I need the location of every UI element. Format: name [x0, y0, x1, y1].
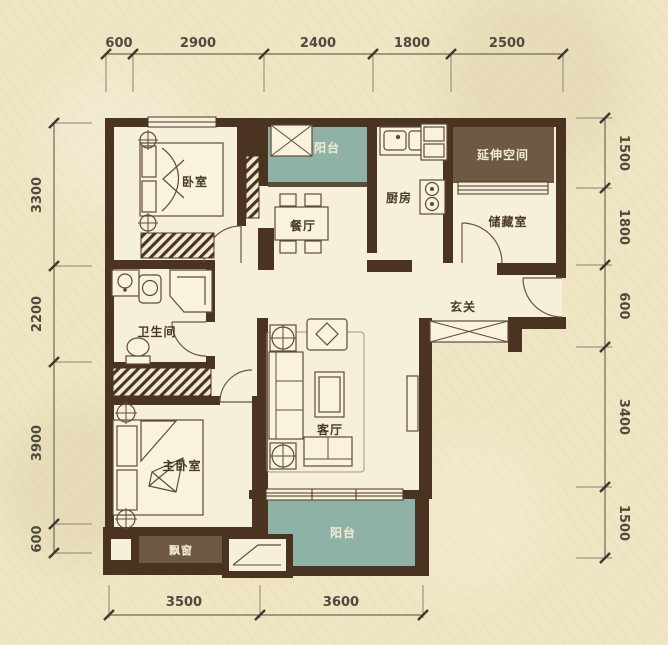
- faucet-dot: [396, 135, 400, 139]
- dim-label: 2500: [489, 36, 525, 51]
- burner-dot: [430, 202, 434, 206]
- wall-segment: [556, 118, 566, 278]
- room-label-master-bedroom: 主卧室: [162, 458, 201, 473]
- dim-label: 1800: [394, 36, 430, 51]
- wall-segment: [415, 497, 429, 576]
- room-label-entry: 玄关: [450, 299, 476, 314]
- balcony-sliding-door: [266, 489, 403, 500]
- dim-label: 2400: [300, 36, 336, 51]
- room-label-kitchen: 厨房: [386, 190, 412, 205]
- floor-plan-drawing: 卧室 阳台 厨房 延伸空间 储藏室 餐厅 玄关 卫生间 主卧室 客厅 阳台 飘窗…: [0, 0, 668, 645]
- dim-label: 2200: [30, 296, 45, 332]
- chair-icon: [280, 194, 296, 206]
- dimension-top: 600 2900 2400 1800 2500: [101, 36, 568, 92]
- chair-icon: [305, 241, 321, 253]
- dim-label: 3900: [30, 425, 45, 461]
- dim-label: 600: [616, 292, 631, 319]
- dim-label: 3300: [30, 177, 45, 213]
- room-label-balcony-top: 阳台: [314, 140, 340, 155]
- room-label-balcony-bottom: 阳台: [330, 525, 356, 540]
- burner-dot: [430, 187, 434, 191]
- bedroom-furniture: [138, 130, 223, 258]
- room-label-bay-window: 飘窗: [169, 543, 193, 557]
- dim-label: 600: [105, 36, 132, 51]
- dimension-bottom: 3500 3600: [104, 585, 428, 620]
- dim-label: 1800: [616, 209, 631, 245]
- dim-label: 1500: [616, 135, 631, 171]
- tv-cabinet-icon: [407, 376, 418, 431]
- wall-segment: [252, 396, 262, 535]
- counter-icon: [421, 124, 447, 160]
- room-label-extension: 延伸空间: [476, 147, 529, 162]
- wall-segment: [105, 260, 215, 269]
- chair-icon: [280, 241, 296, 253]
- wall-segment: [497, 263, 557, 275]
- drain-dot: [123, 288, 127, 292]
- wall-segment: [258, 228, 274, 270]
- dimension-left: 3300 2200 3900 600: [30, 118, 92, 558]
- sofa-icon: [269, 352, 303, 439]
- storage-window: [458, 182, 548, 194]
- dim-label: 3600: [323, 595, 359, 610]
- wall-segment: [508, 317, 522, 352]
- wall-segment: [367, 260, 412, 272]
- toilet-tank: [126, 356, 150, 364]
- room-label-bathroom: 卫生间: [137, 324, 176, 339]
- wall-segment: [103, 563, 233, 575]
- dimension-right: 1500 1800 600 3400 1500: [576, 113, 631, 563]
- room-label-living: 客厅: [316, 422, 343, 437]
- dim-label: 2900: [180, 36, 216, 51]
- cabinet-icon: [246, 156, 259, 218]
- corridor-wardrobe-icon: [113, 368, 211, 396]
- balcony-top-furniture: [271, 125, 312, 156]
- platform-furniture: [229, 539, 286, 571]
- bay-corner-niche: [111, 539, 131, 560]
- wall-segment: [419, 342, 432, 499]
- entry-furniture: [430, 321, 508, 342]
- wall-segment: [403, 490, 429, 499]
- dim-label: 3500: [166, 595, 202, 610]
- toilet-icon: [127, 338, 149, 356]
- balcony-top-counter: [268, 182, 367, 187]
- dim-label: 1500: [616, 505, 631, 541]
- wall-segment: [367, 118, 377, 253]
- dim-label: 600: [30, 525, 45, 552]
- wardrobe-icon: [141, 233, 214, 258]
- room-label-dining: 餐厅: [290, 218, 316, 233]
- floor-plan-page: 卧室 阳台 厨房 延伸空间 储藏室 餐厅 玄关 卫生间 主卧室 客厅 阳台 飘窗…: [0, 0, 668, 645]
- dim-label: 3400: [616, 399, 631, 435]
- platform-box: [229, 539, 286, 571]
- chair-icon: [305, 194, 321, 206]
- room-label-storage: 储藏室: [488, 214, 527, 229]
- wall-segment: [105, 396, 220, 405]
- room-label-bedroom: 卧室: [182, 174, 208, 189]
